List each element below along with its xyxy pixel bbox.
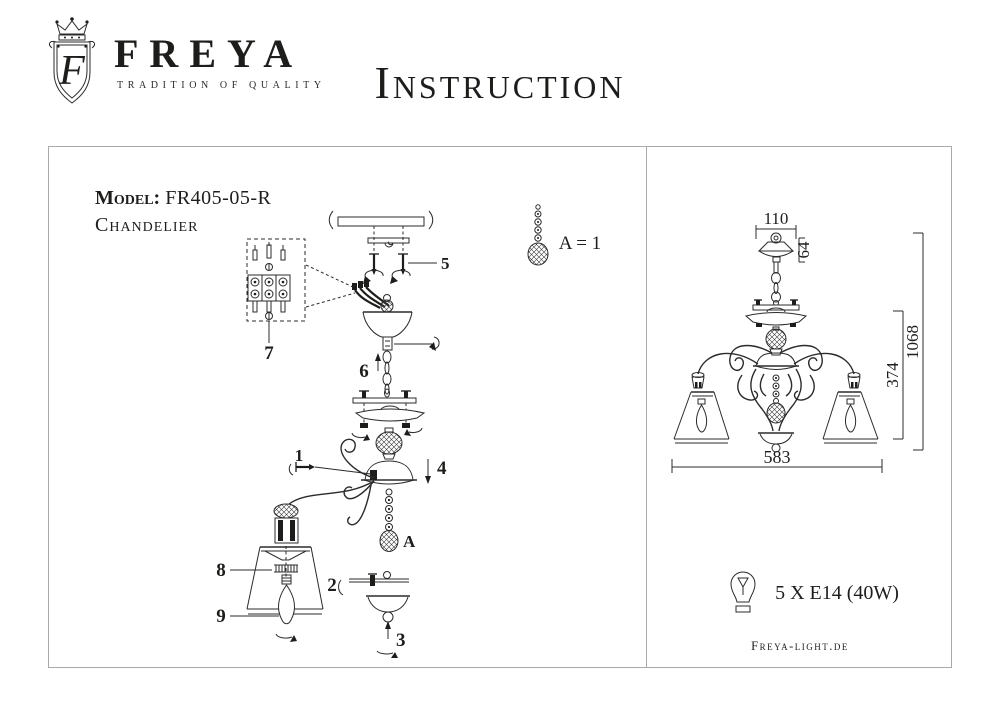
bulb-spec: 5 X E14 (40W) <box>775 582 899 604</box>
dim-total-height: 1068 <box>903 233 923 450</box>
svg-text:110: 110 <box>764 209 789 228</box>
svg-text:583: 583 <box>764 447 791 467</box>
page-title: Instruction <box>375 57 626 108</box>
mounting-screws: 5 <box>363 226 450 284</box>
crown-icon <box>55 17 88 40</box>
document-title-wrap: Instruction <box>0 56 1000 109</box>
stripped-wires <box>253 242 285 260</box>
exploded-assembly-diagram: 5 <box>49 147 646 667</box>
crystal-drop-center: A <box>380 489 416 552</box>
callout-9: 9 <box>216 606 226 627</box>
crystal-ball-upper <box>376 428 402 459</box>
dim-canopy-width: 110 <box>756 209 796 239</box>
center-stem <box>751 369 801 452</box>
callout-5: 5 <box>441 254 450 273</box>
legend-crystal-drop: A = 1 <box>528 205 601 265</box>
dim-body-height: 374 <box>883 311 903 439</box>
dim-canopy-height: 64 <box>794 238 813 262</box>
plate-front <box>746 308 806 327</box>
terminal-block-detail: 7 <box>247 239 355 364</box>
svg-text:1068: 1068 <box>903 325 922 359</box>
right-lamp <box>823 373 878 444</box>
legend-text: A = 1 <box>559 233 601 254</box>
callout-a: A <box>403 532 416 551</box>
svg-text:374: 374 <box>883 362 902 388</box>
bulb-icon <box>731 572 755 612</box>
ceiling-plate <box>356 406 424 421</box>
instruction-sheet: { "header": { "brand": "FREYA", "tagline… <box>0 0 1000 706</box>
ceiling <box>329 211 433 229</box>
callout-4-arrow: 4 <box>425 458 447 484</box>
callout-4: 4 <box>437 458 447 479</box>
content-frame: Model: FR405-05-R Chandelier <box>48 146 952 668</box>
bottom-bowl: 3 <box>366 596 410 658</box>
arm-screw-1: 1 <box>289 446 377 480</box>
callout-7: 7 <box>264 343 274 364</box>
chain: 6 <box>359 351 391 394</box>
canopy-front <box>759 233 793 262</box>
body-bowl <box>361 461 417 484</box>
terminal-strip <box>248 275 290 312</box>
callout-2: 2 <box>327 575 337 596</box>
left-lamp <box>674 373 729 444</box>
callout-8: 8 <box>216 560 226 581</box>
website: Freya-light.de <box>751 639 849 653</box>
suspension-chain <box>772 262 781 306</box>
scrollwork <box>698 346 854 401</box>
arm-end-2: 2 <box>327 572 409 597</box>
dim-total-width: 583 <box>672 447 882 473</box>
canopy <box>363 295 439 352</box>
dimension-drawing: 110 64 <box>647 147 952 667</box>
svg-text:64: 64 <box>794 241 813 259</box>
callout-3: 3 <box>396 630 406 651</box>
callout-6: 6 <box>359 361 369 382</box>
